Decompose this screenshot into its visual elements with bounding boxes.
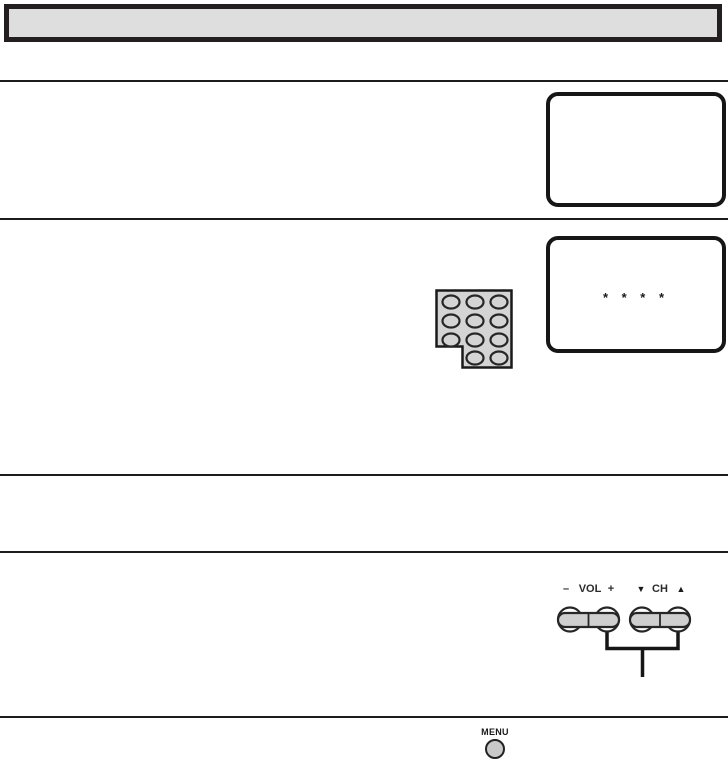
title-bar [4, 4, 722, 42]
volume-plus-label: + [608, 583, 614, 595]
volume-label: VOL [579, 583, 602, 595]
volume-rocker-illustration [558, 608, 619, 632]
keypad-button [443, 296, 460, 309]
tv-screen-blank-illustration [546, 92, 726, 207]
keypad-button [467, 352, 484, 365]
volume-minus-label: – [563, 583, 569, 595]
keypad-button [443, 334, 460, 347]
keypad-button [443, 315, 460, 328]
pointer-bracket-line [607, 631, 678, 677]
channel-down-icon: ▼ [637, 584, 646, 594]
section-divider [0, 218, 728, 220]
channel-up-icon: ▲ [677, 584, 686, 594]
keypad-button [491, 296, 508, 309]
tv-screen-password-illustration: * * * * [546, 236, 726, 353]
password-asterisks-text: * * * * [603, 284, 669, 305]
keypad-button [467, 315, 484, 328]
section-divider [0, 716, 728, 718]
keypad-button [491, 315, 508, 328]
section-divider [0, 80, 728, 82]
section-divider [0, 551, 728, 553]
keypad-button [467, 334, 484, 347]
section-divider [0, 474, 728, 476]
keypad-button [491, 334, 508, 347]
keypad-button [467, 296, 484, 309]
channel-label: CH [652, 583, 668, 595]
menu-button-label: MENU [467, 727, 523, 737]
menu-button-illustration [485, 739, 505, 759]
keypad-button [491, 352, 508, 365]
vol-ch-controls-illustration: – VOL + ▼ CH ▲ [548, 580, 698, 685]
number-keypad-illustration [435, 289, 513, 369]
channel-rocker-illustration [630, 608, 690, 632]
manual-page: * * * * – VOL + ▼ CH ▲ [0, 0, 728, 761]
